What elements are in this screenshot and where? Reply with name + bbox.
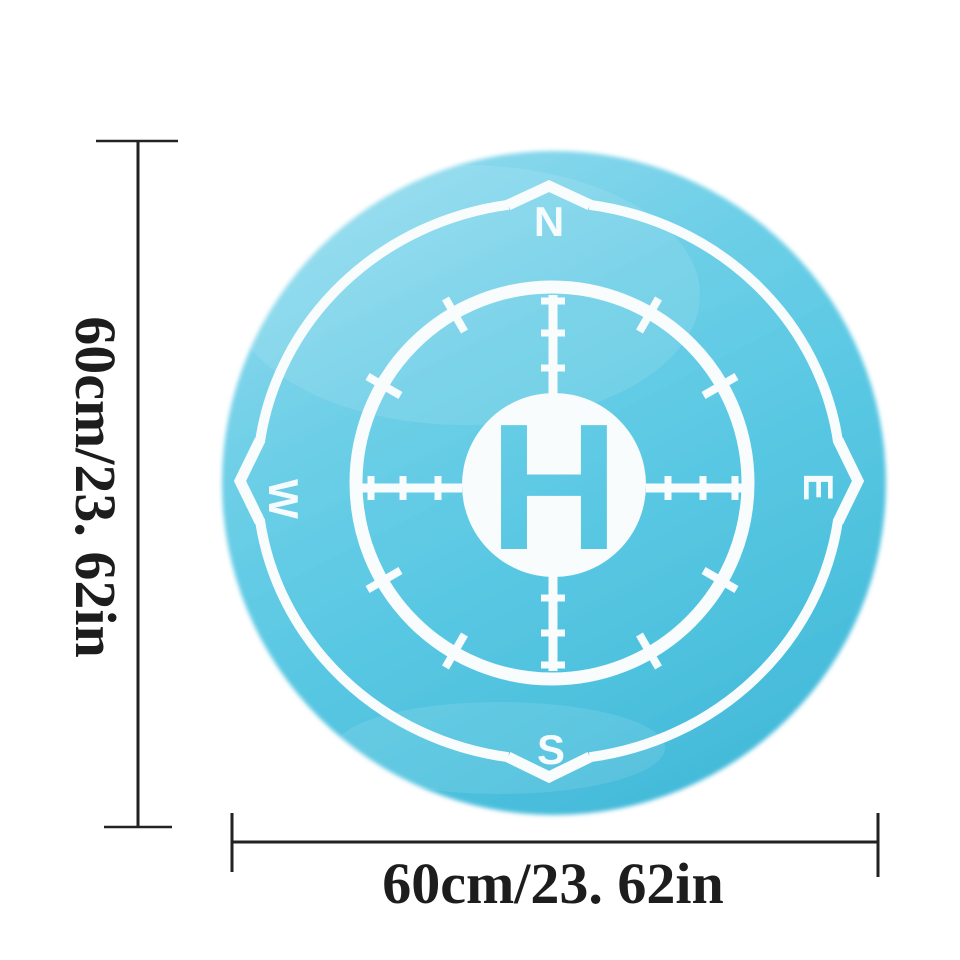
compass-label-east: E bbox=[795, 473, 842, 501]
helipad-h-marking: H bbox=[489, 387, 619, 588]
height-dimension-label: 60cm/23. 62in bbox=[63, 316, 128, 658]
width-dimension-label: 60cm/23. 62in bbox=[382, 851, 724, 916]
pad-sheen-top bbox=[230, 165, 700, 425]
compass-label-north: N bbox=[534, 198, 564, 245]
compass-label-south: S bbox=[537, 726, 565, 773]
product-figure: N E S W bbox=[0, 0, 960, 960]
compass-label-west: W bbox=[260, 479, 307, 519]
landing-pad: N E S W bbox=[222, 151, 886, 815]
product-photo-page: N E S W bbox=[0, 0, 960, 960]
